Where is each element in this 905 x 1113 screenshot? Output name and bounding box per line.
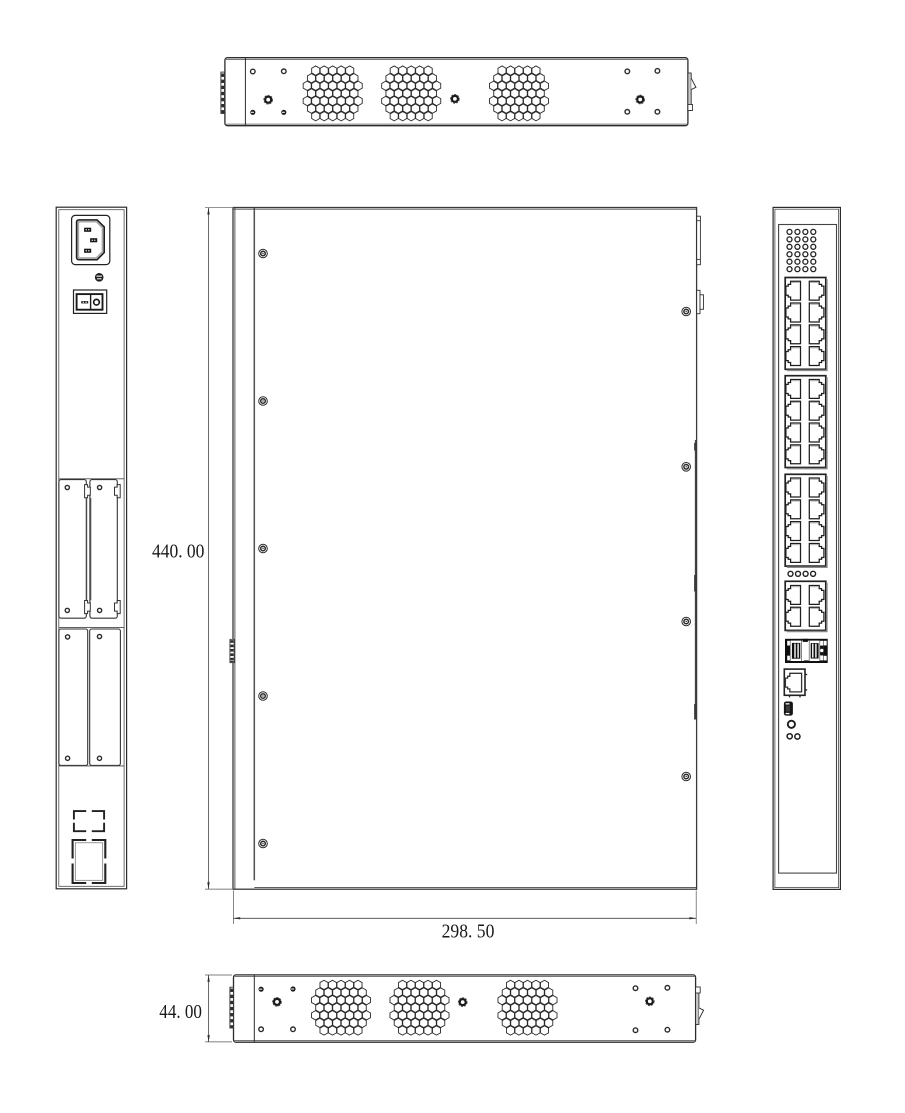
svg-text:298. 50: 298. 50 bbox=[442, 920, 495, 942]
svg-text:440. 00: 440. 00 bbox=[152, 541, 204, 563]
svg-text:44. 00: 44. 00 bbox=[159, 1001, 202, 1023]
